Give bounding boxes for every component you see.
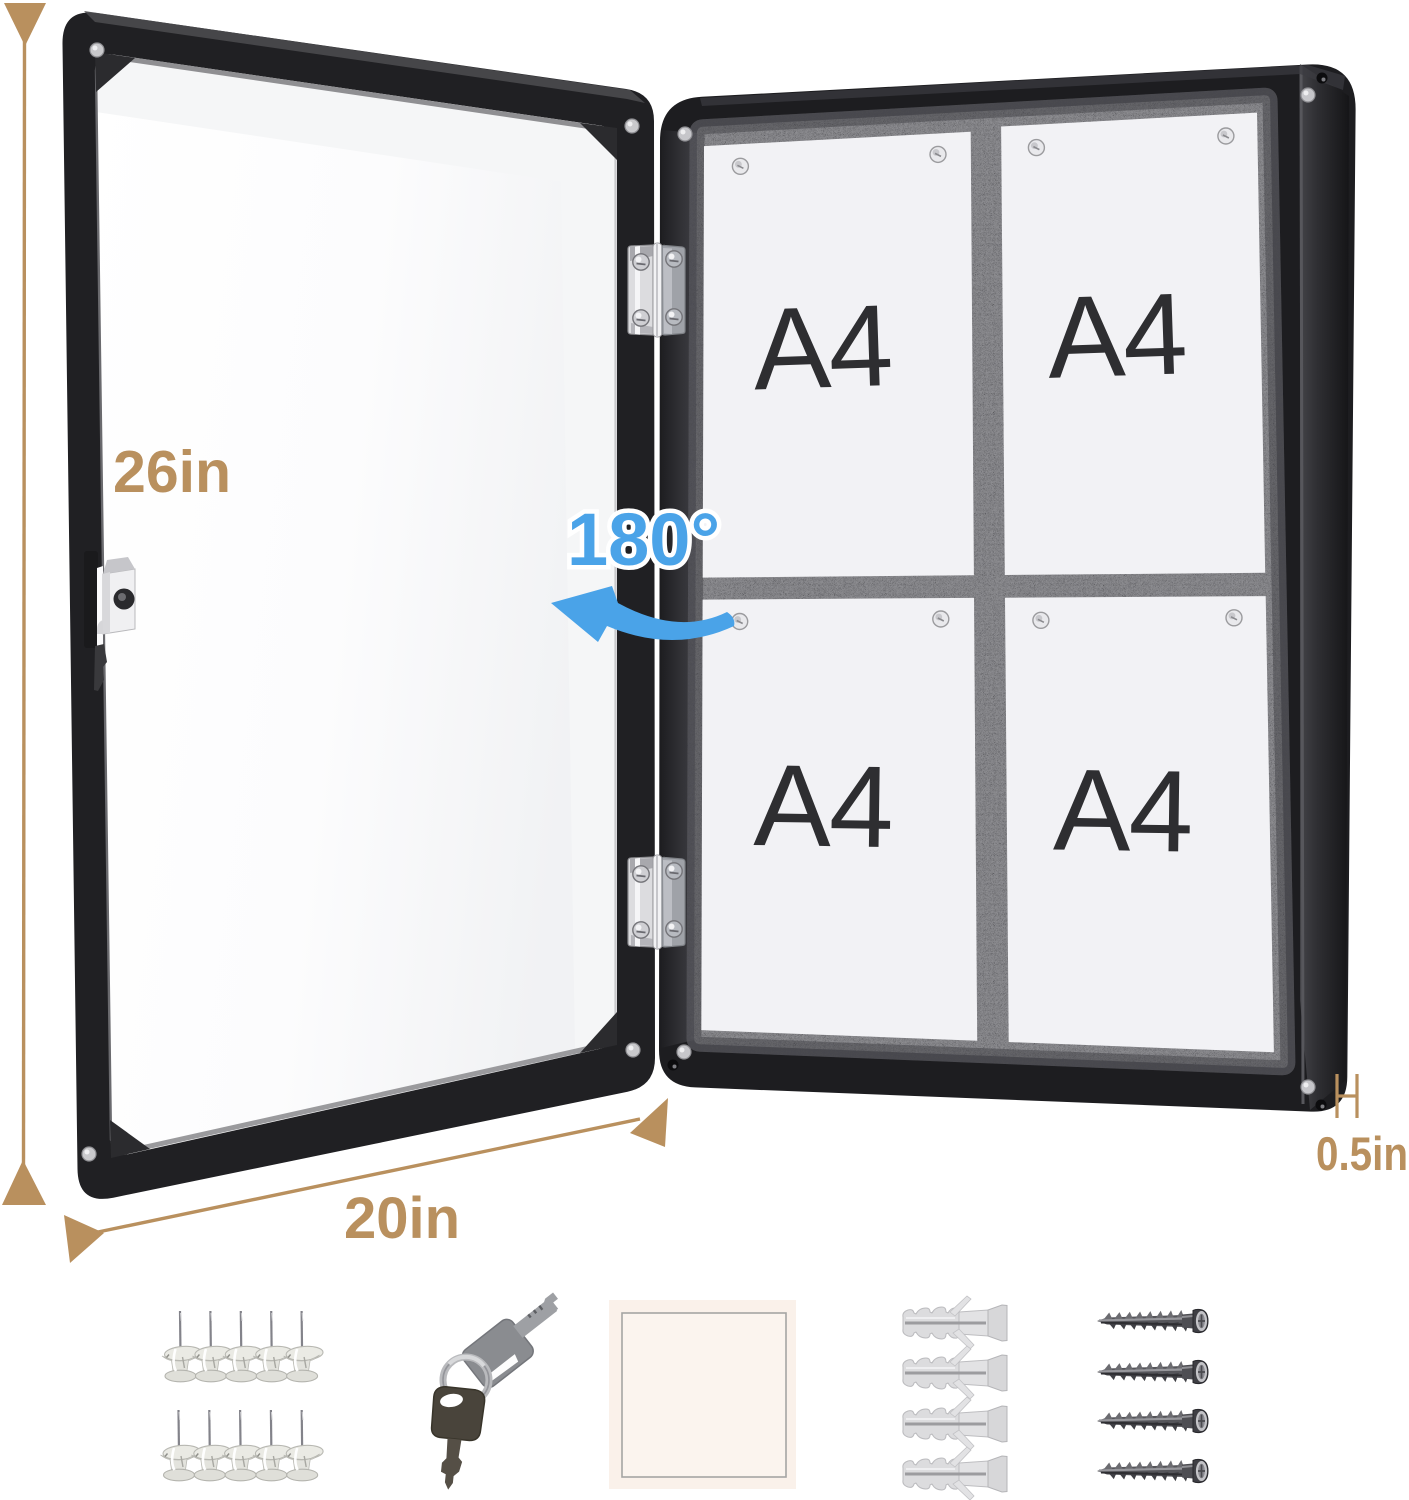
- svg-text:0.5in: 0.5in: [1316, 1127, 1408, 1180]
- svg-text:A4: A4: [753, 740, 893, 872]
- svg-text:20in: 20in: [344, 1186, 460, 1251]
- svg-text:A4: A4: [1052, 745, 1192, 877]
- svg-text:A4: A4: [1045, 268, 1187, 403]
- svg-text:26in: 26in: [113, 439, 231, 505]
- svg-text:A4: A4: [751, 280, 893, 415]
- svg-text:180°: 180°: [567, 498, 720, 581]
